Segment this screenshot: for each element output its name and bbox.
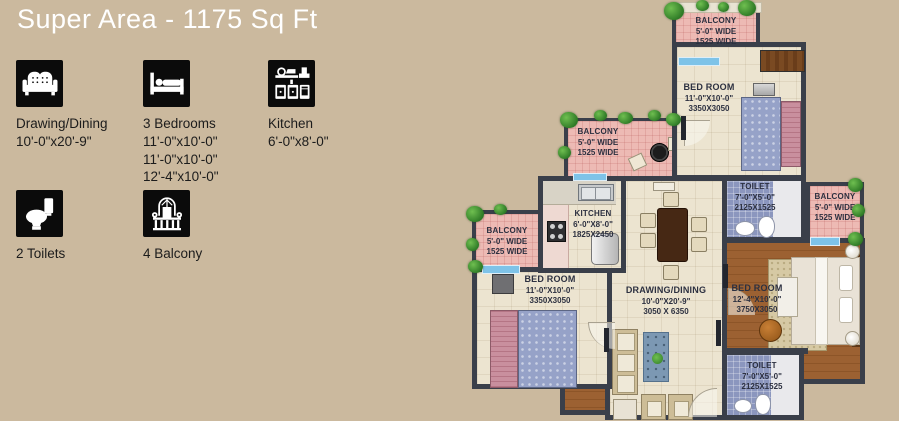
room-name: BED ROOM (667, 82, 751, 94)
sliding-door (678, 57, 720, 66)
room-label-balcony-mid: BALCONY 5'-0" WIDE 1525 WIDE (562, 127, 634, 159)
plant-icon (494, 204, 507, 215)
dining-chair (640, 233, 656, 248)
room-dim-mm: 3350X3050 (504, 296, 596, 307)
room-dim-ft: 5'-0" WIDE (472, 237, 542, 248)
plant-icon (664, 2, 684, 20)
dining-chair (663, 192, 679, 207)
room-label-bedroom-left: BED ROOM 11'-0"X10'-0" 3350X3050 (504, 274, 596, 307)
lamp (845, 331, 860, 346)
rug (643, 332, 669, 382)
room-dim-ft: 11'-0"X10'-0" (504, 286, 596, 297)
legend-item-balcony: 4 Balcony (143, 190, 263, 263)
dresser (753, 83, 775, 96)
floor-plan-page: Super Area - 1175 Sq Ft Drawing/Dining 1… (0, 0, 899, 421)
room-name: BALCONY (801, 192, 869, 203)
dining-table (657, 208, 688, 262)
legend-item-bedrooms: 3 Bedrooms 11'-0"x10'-0" 11'-0"x10'-0" 1… (143, 60, 263, 186)
wardrobe (760, 50, 805, 72)
bed-pillows (839, 265, 853, 291)
legend-dim: 6'-0"x8'-0" (268, 133, 388, 151)
room-name: BALCONY (562, 127, 634, 138)
plant-icon (560, 112, 578, 128)
room-name: BALCONY (674, 16, 758, 27)
kitchen-sink (578, 184, 614, 201)
room-dim-mm: 1525 WIDE (472, 247, 542, 258)
kitchen-window (573, 173, 607, 181)
legend-item-drawing-dining: Drawing/Dining 10'-0"x20'-9" (16, 60, 136, 151)
room-dim-ft: 10'-0"X20'-9" (606, 297, 726, 308)
room-dim-ft: 6'-0"X8'-0" (556, 220, 630, 231)
bed-pillows (839, 297, 853, 323)
plant-icon (468, 260, 483, 273)
tv-unit (653, 182, 675, 191)
toilet-icon (16, 190, 63, 237)
legend-dim: 11'-0"x10'-0" (143, 151, 263, 169)
plant-icon (558, 146, 571, 159)
room-name: TOILET (722, 361, 802, 372)
bed (518, 310, 577, 388)
room-dim-ft: 5'-0" WIDE (562, 138, 634, 149)
bed-pillows (781, 101, 801, 167)
patio-table (650, 143, 669, 162)
legend-dim: 11'-0"x10'-0" (143, 133, 263, 151)
kitchen-icon (268, 60, 315, 107)
room-name: BALCONY (472, 226, 542, 237)
wc (755, 394, 771, 415)
plant-icon (466, 206, 484, 222)
room-dim-mm: 1525 WIDE (562, 148, 634, 159)
plant-icon (738, 0, 756, 16)
sliding-door (810, 237, 840, 246)
wc (758, 216, 775, 238)
room-name: TOILET (716, 182, 794, 193)
room-dim-mm: 1825X2450 (556, 230, 630, 241)
bed-icon (143, 60, 190, 107)
wash-basin (735, 221, 755, 236)
room-label-kitchen: KITCHEN 6'-0"X8'-0" 1825X2450 (556, 209, 630, 241)
room-dim-ft: 12'-4"X10'-0" (716, 295, 798, 306)
room-label-bedroom-top: BED ROOM 11'-0"X10'-0" 3350X3050 (667, 82, 751, 115)
dining-chair (691, 237, 707, 252)
room-label-toilet-top: TOILET 7'-0"X5'-0" 2125X1525 (716, 182, 794, 214)
wall (722, 348, 808, 354)
plant-icon (852, 204, 865, 217)
door-leaf (716, 320, 721, 346)
room-dim-ft: 5'-0" WIDE (674, 27, 758, 38)
sofa (612, 329, 638, 395)
side-table (613, 399, 637, 420)
plant-icon (696, 0, 709, 11)
plant-icon (666, 113, 681, 126)
plant-icon (466, 238, 479, 251)
plant-icon (618, 112, 633, 124)
plant-icon (848, 178, 863, 192)
room-dim-mm: 3750X3050 (716, 305, 798, 316)
plant-icon (652, 353, 663, 364)
wash-basin (734, 399, 752, 413)
room-dim-mm: 3350X3050 (667, 104, 751, 115)
sliding-door (482, 265, 520, 274)
dining-chair (691, 217, 707, 232)
legend-dim: 10'-0"x20'-9" (16, 133, 136, 151)
sofa-icon (16, 60, 63, 107)
legend-label: 2 Toilets (16, 245, 136, 263)
legend-item-toilets: 2 Toilets (16, 190, 136, 263)
room-dim-mm: 2125X1525 (722, 382, 802, 393)
room-name: BED ROOM (716, 283, 798, 295)
room-dim-mm: 3050 X 6350 (606, 307, 726, 318)
legend-label: Kitchen (268, 115, 388, 133)
plant-icon (648, 110, 661, 121)
room-dim-ft: 11'-0"X10'-0" (667, 94, 751, 105)
master-passage (801, 348, 865, 384)
armchair (641, 394, 666, 420)
dining-chair (663, 265, 679, 280)
plant-icon (594, 110, 607, 121)
page-title: Super Area - 1175 Sq Ft (17, 4, 318, 35)
bed-runner (815, 257, 828, 345)
room-dim-mm: 1525 WIDE (674, 37, 758, 48)
legend-dim: 12'-4"x10'-0" (143, 168, 263, 186)
door-leaf (681, 116, 686, 140)
lamp (845, 244, 860, 259)
door-leaf (604, 328, 609, 352)
room-dim-ft: 7'-0"X5'-0" (716, 193, 794, 204)
legend-label: 3 Bedrooms (143, 115, 263, 133)
legend-label: Drawing/Dining (16, 115, 136, 133)
room-label-balcony-left: BALCONY 5'-0" WIDE 1525 WIDE (472, 226, 542, 258)
room-name: BED ROOM (504, 274, 596, 286)
room-dim-ft: 7'-0"X5'-0" (722, 372, 802, 383)
room-label-toilet-bottom: TOILET 7'-0"X5'-0" 2125X1525 (722, 361, 802, 393)
room-dim-mm: 2125X1525 (716, 203, 794, 214)
plant-icon (848, 232, 863, 246)
legend-item-kitchen: Kitchen 6'-0"x8'-0" (268, 60, 388, 151)
room-name: DRAWING/DINING (606, 285, 726, 297)
room-label-balcony-top: BALCONY 5'-0" WIDE 1525 WIDE (674, 16, 758, 48)
plant-icon (718, 2, 729, 12)
room-name: KITCHEN (556, 209, 630, 220)
legend-label: 4 Balcony (143, 245, 263, 263)
balcony-icon (143, 190, 190, 237)
bed-pillows (490, 310, 518, 388)
ottoman (759, 319, 782, 342)
room-label-drawing-dining: DRAWING/DINING 10'-0"X20'-9" 3050 X 6350 (606, 285, 726, 318)
dining-chair (640, 213, 656, 228)
room-label-bedroom-master: BED ROOM 12'-4"X10'-0" 3750X3050 (716, 283, 798, 316)
